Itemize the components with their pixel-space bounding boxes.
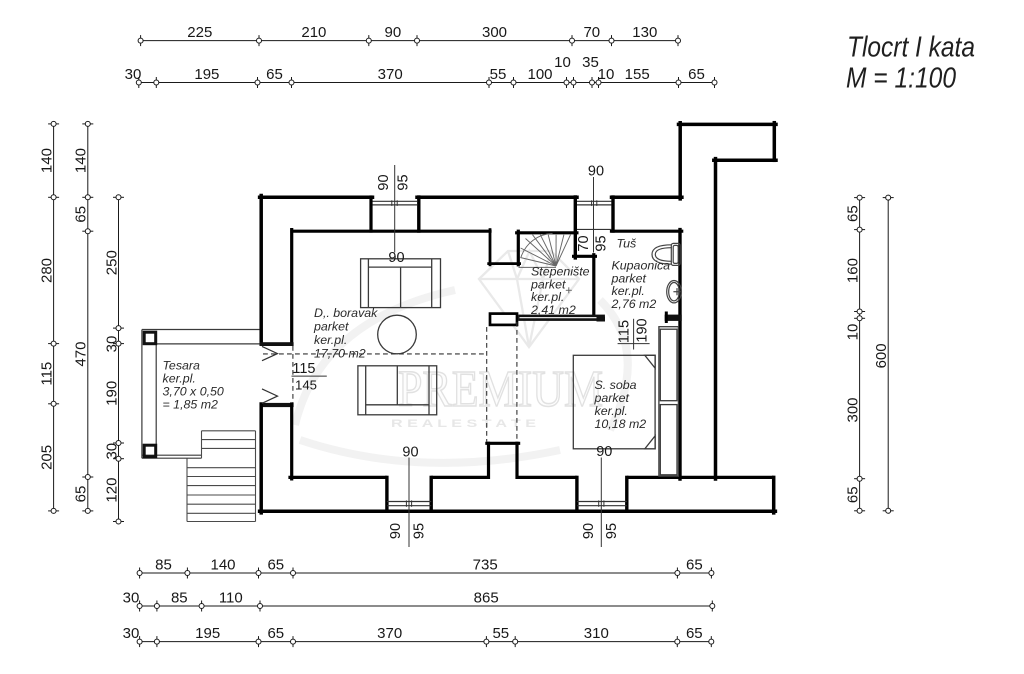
svg-text:65: 65 <box>686 625 703 642</box>
svg-text:155: 155 <box>625 66 650 83</box>
svg-text:30: 30 <box>123 625 140 642</box>
svg-text:100: 100 <box>527 66 552 83</box>
svg-text:140: 140 <box>39 148 56 173</box>
svg-text:Tuš: Tuš <box>617 237 638 251</box>
svg-text:95: 95 <box>395 174 411 190</box>
svg-text:470: 470 <box>73 342 90 367</box>
svg-text:190: 190 <box>103 381 120 406</box>
svg-text:95: 95 <box>593 235 609 251</box>
svg-text:55: 55 <box>492 625 509 642</box>
svg-text:65: 65 <box>267 556 284 573</box>
svg-text:90: 90 <box>596 444 612 460</box>
svg-text:35: 35 <box>582 54 599 71</box>
svg-text:90: 90 <box>376 174 392 190</box>
svg-text:865: 865 <box>474 589 499 606</box>
svg-text:R E A L E S T A T E: R E A L E S T A T E <box>391 418 536 430</box>
svg-text:130: 130 <box>632 24 657 41</box>
svg-text:370: 370 <box>378 66 403 83</box>
svg-text:95: 95 <box>412 523 428 539</box>
svg-text:30: 30 <box>125 66 142 83</box>
svg-text:65: 65 <box>688 66 705 83</box>
svg-text:140: 140 <box>210 556 235 573</box>
svg-text:195: 195 <box>194 66 219 83</box>
svg-text:210: 210 <box>301 24 326 41</box>
svg-text:Tlocrt I kata: Tlocrt I kata <box>847 32 975 64</box>
svg-text:10: 10 <box>598 66 615 83</box>
svg-text:90: 90 <box>588 163 604 179</box>
svg-text:120: 120 <box>103 478 120 503</box>
svg-text:10: 10 <box>554 54 571 71</box>
svg-text:115: 115 <box>39 362 56 386</box>
svg-text:70: 70 <box>576 235 592 251</box>
svg-text:85: 85 <box>171 589 188 606</box>
svg-text:90: 90 <box>402 445 418 461</box>
svg-text:115: 115 <box>616 320 632 343</box>
svg-text:65: 65 <box>686 556 703 573</box>
svg-text:205: 205 <box>39 445 56 470</box>
svg-text:55: 55 <box>490 66 507 83</box>
svg-text:250: 250 <box>103 250 120 275</box>
svg-text:300: 300 <box>482 24 507 41</box>
svg-text:280: 280 <box>39 258 56 283</box>
svg-text:30: 30 <box>103 443 120 460</box>
svg-text:160: 160 <box>845 258 862 283</box>
svg-text:115: 115 <box>292 361 315 377</box>
svg-text:85: 85 <box>155 556 172 573</box>
svg-text:140: 140 <box>73 148 90 173</box>
svg-text:70: 70 <box>583 24 600 41</box>
svg-text:65: 65 <box>845 486 862 503</box>
svg-text:735: 735 <box>473 556 498 573</box>
svg-text:300: 300 <box>845 397 862 422</box>
svg-text:90: 90 <box>388 250 404 266</box>
svg-text:65: 65 <box>845 205 862 222</box>
svg-text:90: 90 <box>385 24 402 41</box>
svg-text:145: 145 <box>295 378 317 393</box>
svg-text:370: 370 <box>377 625 402 642</box>
svg-text:30: 30 <box>103 336 120 353</box>
svg-text:190: 190 <box>634 318 650 342</box>
svg-text:30: 30 <box>123 589 140 606</box>
svg-text:65: 65 <box>267 625 284 642</box>
svg-text:65: 65 <box>73 486 90 503</box>
svg-text:90: 90 <box>388 523 404 539</box>
svg-text:M = 1:100: M = 1:100 <box>846 63 956 95</box>
svg-text:600: 600 <box>873 343 890 368</box>
svg-text:10: 10 <box>845 324 862 341</box>
svg-text:195: 195 <box>195 625 220 642</box>
svg-text:90: 90 <box>581 523 597 539</box>
svg-text:310: 310 <box>584 625 609 642</box>
svg-text:225: 225 <box>187 24 212 41</box>
svg-text:95: 95 <box>604 523 620 539</box>
svg-text:65: 65 <box>266 66 283 83</box>
svg-text:65: 65 <box>73 206 90 223</box>
svg-text:110: 110 <box>219 589 243 606</box>
